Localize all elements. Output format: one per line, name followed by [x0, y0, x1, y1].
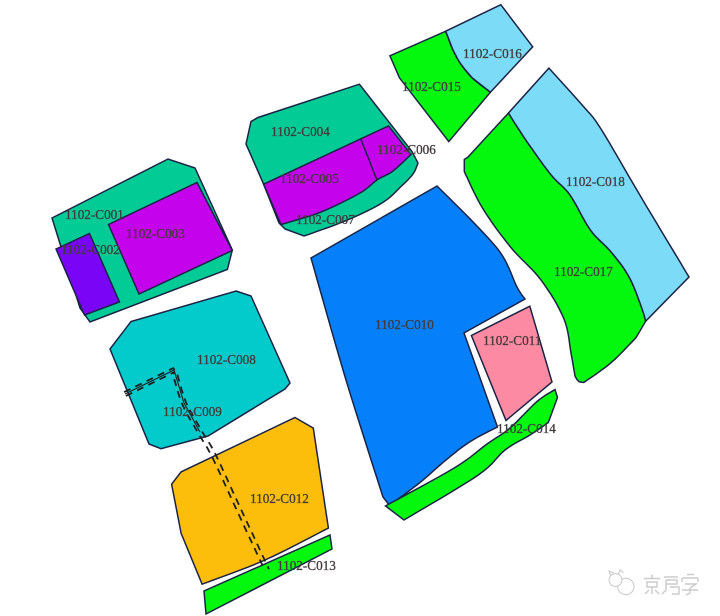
svg-text:1102-C009: 1102-C009	[163, 404, 222, 419]
svg-text:1102-C001: 1102-C001	[65, 207, 124, 222]
svg-text:1102-C016: 1102-C016	[463, 46, 522, 61]
svg-text:1102-C003: 1102-C003	[126, 226, 185, 241]
svg-text:1102-C006: 1102-C006	[377, 142, 436, 157]
svg-text:1102-C004: 1102-C004	[271, 124, 330, 139]
svg-text:1102-C011: 1102-C011	[483, 333, 541, 348]
svg-text:1102-C010: 1102-C010	[375, 317, 434, 332]
svg-text:1102-C005: 1102-C005	[280, 171, 339, 186]
svg-text:1102-C013: 1102-C013	[277, 558, 336, 573]
svg-text:1102-C012: 1102-C012	[250, 491, 309, 506]
svg-text:1102-C014: 1102-C014	[497, 421, 556, 436]
svg-text:1102-C007: 1102-C007	[296, 212, 355, 227]
svg-text:1102-C008: 1102-C008	[197, 352, 256, 367]
svg-text:1102-C018: 1102-C018	[566, 174, 625, 189]
svg-text:1102-C015: 1102-C015	[402, 79, 461, 94]
svg-text:1102-C017: 1102-C017	[554, 264, 613, 279]
svg-text:1102-C002: 1102-C002	[61, 242, 120, 257]
